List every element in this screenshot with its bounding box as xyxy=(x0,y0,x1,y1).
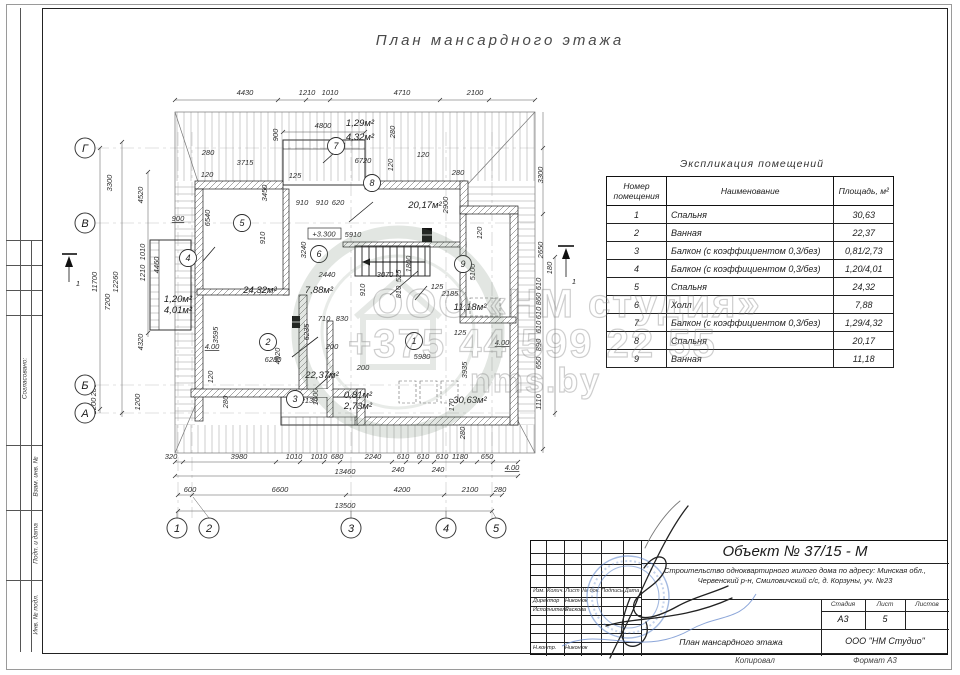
dim-label: 860 xyxy=(534,292,543,305)
sheets-label: Листов xyxy=(907,601,947,608)
dim-label: 3715 xyxy=(237,158,255,167)
sidebar-label-inv-no: Инв. № подл. xyxy=(33,575,40,655)
dim-label: 3980 xyxy=(231,452,249,461)
dim-label: 620 xyxy=(332,198,345,207)
room-number: 1 xyxy=(411,336,416,346)
dim-label: 1010 xyxy=(311,452,329,461)
schedule-cell: 20,17 xyxy=(834,332,894,350)
area-label: 2,73м² xyxy=(343,401,373,412)
schedule-cell: 30,63 xyxy=(834,206,894,224)
dim-label: 3300 xyxy=(105,174,114,192)
grid-col-label: 1 xyxy=(174,523,180,535)
dim-label: 200 xyxy=(325,342,339,351)
area-label: 20,17м² xyxy=(407,200,442,211)
dim-label: 1 xyxy=(572,277,576,286)
dim-label: 3070 xyxy=(377,270,395,279)
dim-label: 2900 xyxy=(441,196,450,215)
schedule-cell: 0,81/2,73 xyxy=(834,242,894,260)
dim-label: 180 xyxy=(545,261,554,274)
room-number: 2 xyxy=(264,337,270,347)
room-number: 8 xyxy=(369,178,374,188)
schedule-cell: 3 xyxy=(607,242,667,260)
tb-signer-row: ДиректорНиконюк xyxy=(531,598,641,607)
grid-row-label: Г xyxy=(82,143,89,155)
dim-label: 4.00 xyxy=(495,338,510,347)
dim-label: 830 xyxy=(336,314,349,323)
dim-label: 4710 xyxy=(394,88,412,97)
dim-label: 280 xyxy=(451,168,465,177)
dim-label: 890 xyxy=(534,338,543,351)
dim-label: 13460 xyxy=(335,467,357,476)
title-block: Объект № 37/15 - М Строительство одноква… xyxy=(530,540,948,655)
dim-label: 280 xyxy=(221,395,230,409)
dim-label: 320 xyxy=(165,452,178,461)
schedule-cell: 11,18 xyxy=(834,350,894,368)
dim-label: 610 xyxy=(534,277,543,290)
schedule-cell: Холл xyxy=(666,296,833,314)
area-label: 11,18м² xyxy=(454,302,488,313)
dim-label: 2650 xyxy=(536,241,545,260)
dim-label: 125 xyxy=(431,282,444,291)
area-label: 22,37м² xyxy=(304,370,339,381)
schedule-col-area: Площадь, м² xyxy=(834,177,894,206)
area-label: 4,32м² xyxy=(346,132,375,143)
dim-label: 12260 xyxy=(111,271,120,293)
dim-label: 4460 xyxy=(152,256,161,274)
dim-label: 4520 xyxy=(136,186,145,204)
dim-label: 1010 xyxy=(286,452,304,461)
floor-plan-drawing: 4430121010104710210048009002802801203715… xyxy=(62,72,578,552)
schedule-row: 7Балкон (с коэффициентом 0,3/без)1,29/4,… xyxy=(607,314,894,332)
project-description: Строительство одноквартирного жилого дом… xyxy=(647,566,943,586)
drawing-name: План мансардного этажа xyxy=(643,637,819,647)
schedule-cell: 1,29/4,32 xyxy=(834,314,894,332)
schedule-table: Номер помещения Наименование Площадь, м²… xyxy=(606,176,894,368)
schedule-cell: 8 xyxy=(607,332,667,350)
room-number: 4 xyxy=(185,253,190,263)
stage-value: А3 xyxy=(823,614,863,624)
schedule-row: 8Спальня20,17 xyxy=(607,332,894,350)
dim-label: 120 xyxy=(417,150,430,159)
stage-label: Стадия xyxy=(823,601,863,608)
schedule-cell: 7,88 xyxy=(834,296,894,314)
schedule-cell: 4 xyxy=(607,260,667,278)
area-label: 1,29м² xyxy=(346,118,375,129)
dim-label: 600 xyxy=(184,485,197,494)
schedule-row: 5Спальня24,32 xyxy=(607,278,894,296)
schedule-cell: Ванная xyxy=(666,224,833,242)
dim-label: 5980 xyxy=(414,352,432,361)
schedule-cell: Ванная xyxy=(666,350,833,368)
tb-signer-row: ИсполнительРаскова xyxy=(531,607,641,616)
dim-label: 900 xyxy=(172,214,185,223)
dim-label: 2440 xyxy=(318,270,337,279)
dim-label: 1210 xyxy=(138,264,147,282)
dim-label: 3300 xyxy=(536,166,545,184)
sheet-label: Лист xyxy=(867,601,903,608)
dim-label: 1180 xyxy=(452,452,469,461)
sidebar-line xyxy=(6,290,42,291)
schedule-cell: Спальня xyxy=(666,206,833,224)
schedule-row: 9Ванная11,18 xyxy=(607,350,894,368)
dim-label: 4.00 xyxy=(205,342,220,351)
area-label: 7,88м² xyxy=(305,285,334,296)
dim-label: 13500 xyxy=(335,501,357,510)
schedule-cell: 9 xyxy=(607,350,667,368)
room-number: 6 xyxy=(316,249,321,259)
grid-row-label: В xyxy=(81,218,88,230)
dim-label: 610 xyxy=(417,452,430,461)
schedule-cell: 22,37 xyxy=(834,224,894,242)
dim-label: 5910 xyxy=(345,230,363,239)
grid-col-label: 5 xyxy=(493,523,500,535)
dim-label: 2100 xyxy=(461,485,480,494)
dim-label: 240 xyxy=(431,465,445,474)
schedule-cell: 6 xyxy=(607,296,667,314)
dim-label: 1 xyxy=(76,279,80,288)
dim-label: 1010 xyxy=(322,88,340,97)
grid-col-label: 2 xyxy=(205,523,212,535)
sidebar-line xyxy=(6,240,42,241)
schedule-row: 6Холл7,88 xyxy=(607,296,894,314)
section-mark-right xyxy=(558,246,574,277)
dim-label: 1200 xyxy=(133,393,142,411)
sidebar-line xyxy=(20,8,21,652)
dim-label: 910 xyxy=(316,198,329,207)
dim-label: 680 xyxy=(331,452,344,461)
dim-label: 6540 xyxy=(203,209,212,227)
schedule-cell: 7 xyxy=(607,314,667,332)
schedule-cell: Балкон (с коэффициентом 0,3/без) xyxy=(666,314,833,332)
sidebar-label-sign-date: Подп. и дата xyxy=(33,504,40,584)
area-label: 24,32м² xyxy=(242,285,277,296)
schedule-row: 2Ванная22,37 xyxy=(607,224,894,242)
company-name: ООО "НМ Студио" xyxy=(821,636,949,646)
elevation-mark: +3.300 xyxy=(312,230,336,239)
schedule-row: 4Балкон (с коэффициентом 0,3/без)1,20/4,… xyxy=(607,260,894,278)
schedule-cell: Балкон (с коэффициентом 0,3/без) xyxy=(666,242,833,260)
schedule-cell: 5 xyxy=(607,278,667,296)
dim-label: 280 xyxy=(201,148,215,157)
dim-label: 610 xyxy=(436,452,449,461)
dim-label: 910 xyxy=(258,231,267,244)
sidebar-line xyxy=(6,265,42,266)
schedule-cell: Балкон (с коэффициентом 0,3/без) xyxy=(666,260,833,278)
format-label: Формат А3 xyxy=(830,656,920,665)
dim-label: 2100 xyxy=(466,88,485,97)
room-number: 9 xyxy=(460,259,465,269)
schedule-row: 1Спальня30,63 xyxy=(607,206,894,224)
schedule-cell: 2 xyxy=(607,224,667,242)
schedule-row: 3Балкон (с коэффициентом 0,3/без)0,81/2,… xyxy=(607,242,894,260)
dim-label: 910 xyxy=(358,283,367,296)
schedule-col-name: Наименование xyxy=(666,177,833,206)
dim-label: 650 xyxy=(534,356,543,369)
dim-label: 11700 xyxy=(90,271,99,292)
grid-row-label: Б xyxy=(81,380,88,392)
schedule-cell: Спальня xyxy=(666,278,833,296)
dim-label: 280 xyxy=(458,426,467,440)
page-title: План мансардного этажа xyxy=(300,32,700,49)
dim-label: 6720 xyxy=(355,156,373,165)
area-label: 30,63м² xyxy=(453,395,487,406)
dim-label: 810 xyxy=(394,285,403,298)
dim-label: 910 xyxy=(296,198,309,207)
dim-label: 120 xyxy=(386,158,395,171)
grid-col-label: 4 xyxy=(443,523,449,535)
tb-signer-row: Н.контр.Никонюк xyxy=(531,645,641,654)
dim-label: 1000 xyxy=(311,388,320,406)
grid-col-label: 3 xyxy=(348,523,355,535)
dim-label: 2240 xyxy=(364,452,383,461)
dim-label: 7200 xyxy=(103,293,112,311)
dim-label: 6235 xyxy=(302,323,311,341)
dim-label: 900 xyxy=(271,128,280,141)
copied-label: Копировал xyxy=(700,656,810,665)
section-mark-left xyxy=(62,254,77,282)
dim-label: 120 xyxy=(201,170,214,179)
schedule-cell: 1 xyxy=(607,206,667,224)
dim-label: 3240 xyxy=(299,241,308,259)
dim-label: 3935 xyxy=(460,361,469,379)
dim-label: 200 xyxy=(356,363,370,372)
dim-label: 1010 xyxy=(138,243,147,261)
dim-label: 650 xyxy=(481,452,494,461)
tb-column-label: Дата xyxy=(620,588,644,594)
dim-label: 6280 xyxy=(265,355,283,364)
dim-label: 4430 xyxy=(237,88,255,97)
dim-label: 240 xyxy=(391,465,405,474)
dim-label: 710 xyxy=(318,314,331,323)
dim-label: 125 xyxy=(454,328,467,337)
object-number: Объект № 37/15 - М xyxy=(643,543,947,560)
schedule-cell: 24,32 xyxy=(834,278,894,296)
schedule-cell: 1,20/4,01 xyxy=(834,260,894,278)
dim-label: 3450 xyxy=(260,184,269,202)
dim-label: 6600 xyxy=(272,485,290,494)
area-label: 0,81м² xyxy=(344,390,373,401)
dim-label: 1800 xyxy=(404,255,413,273)
dim-label: 1110 xyxy=(534,393,543,409)
dim-label: 2185 xyxy=(441,289,460,298)
dim-label: 525 xyxy=(394,269,403,282)
schedule-body: 1Спальня30,632Ванная22,373Балкон (с коэф… xyxy=(607,206,894,368)
dim-label: 125 xyxy=(289,171,302,180)
grid-row-label: А xyxy=(80,408,88,420)
dim-label: 610 xyxy=(534,320,543,333)
dim-label: 4320 xyxy=(136,333,145,351)
area-label: 1,20м² xyxy=(164,294,193,305)
area-label: 4,01м² xyxy=(164,305,193,316)
schedule-col-number: Номер помещения xyxy=(607,177,667,206)
sidebar-line xyxy=(6,315,42,316)
furniture-dashed xyxy=(399,298,500,403)
dim-label: 610 xyxy=(534,306,543,319)
dim-label: 610 xyxy=(397,452,410,461)
dim-label: 3595 xyxy=(211,326,220,344)
dim-label: 120 xyxy=(475,226,484,239)
sheet-value: 5 xyxy=(867,614,903,624)
dim-label: 280 xyxy=(493,485,507,494)
dim-label: 120 xyxy=(206,370,215,383)
sidebar-label-agreed: Согласовано: xyxy=(22,339,29,419)
schedule-title: Экспликация помещений xyxy=(606,158,898,170)
room-number: 3 xyxy=(292,394,297,404)
dim-label: 4200 xyxy=(394,485,412,494)
dim-label: 4.00 xyxy=(505,463,520,472)
dim-label: 1210 xyxy=(299,88,317,97)
dim-label: 280 xyxy=(388,125,397,139)
room-schedule: Экспликация помещений Номер помещения На… xyxy=(606,158,898,368)
dim-label: 4800 xyxy=(315,121,333,130)
schedule-cell: Спальня xyxy=(666,332,833,350)
